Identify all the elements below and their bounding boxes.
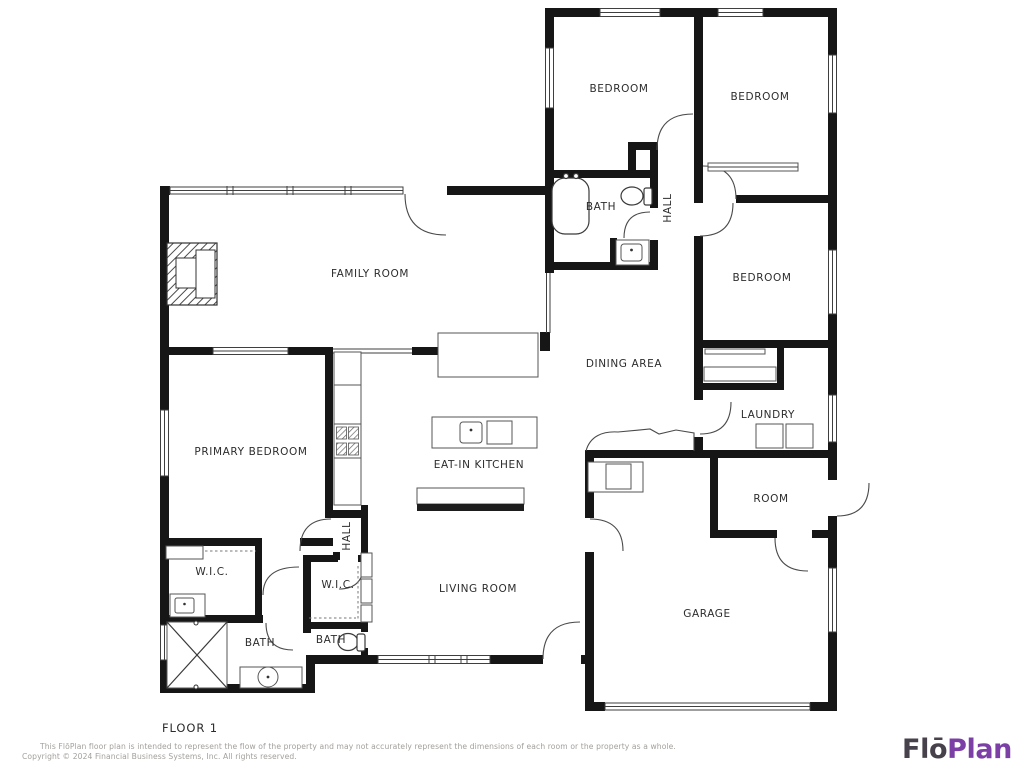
logo-flo: Flō	[902, 734, 947, 765]
bedroom-c-door	[700, 203, 733, 236]
fireplace	[167, 243, 217, 305]
room-label-bedroom-c: BEDROOM	[732, 272, 791, 284]
bath-left-vanity	[240, 667, 302, 688]
room-label-bedroom-a: BEDROOM	[589, 83, 648, 95]
dryer	[786, 424, 813, 448]
bedroom-a-door	[657, 114, 693, 150]
room-label-hall-lower: HALL	[341, 521, 353, 550]
room-label-family-room: FAMILY ROOM	[331, 268, 409, 280]
room-label-garage: GARAGE	[683, 608, 731, 620]
footer: FLOOR 1 This FlōPlan floor plan is inten…	[22, 721, 1012, 765]
wic-left-door	[263, 567, 299, 595]
room-exterior-door	[837, 483, 869, 516]
wic-left-shelf	[166, 546, 203, 559]
kitchen-counter-2	[334, 458, 361, 505]
room-label-hall-upper: HALL	[662, 193, 674, 222]
room-label-wic-right: W.I.C.	[321, 579, 354, 591]
garage-entry-door	[590, 519, 623, 551]
room-label-wic-left: W.I.C.	[195, 566, 228, 578]
stove	[334, 424, 361, 458]
kitchen-peninsula	[438, 333, 538, 377]
wic-left-sink	[170, 594, 205, 617]
room-label-bath-right: BATH	[316, 634, 346, 646]
floplan-logo: FlōPlan	[902, 734, 1012, 765]
floor-plan-svg: BEDROOM BEDROOM BATH HALL BEDROOM FAMILY…	[0, 0, 1024, 768]
kitchen-island	[432, 417, 537, 448]
room-label-primary-bedroom: PRIMARY BEDROOM	[194, 446, 307, 458]
front-door	[543, 622, 580, 659]
room-label-living-room: LIVING ROOM	[439, 583, 517, 595]
water-heater	[588, 462, 643, 492]
shower	[167, 621, 227, 689]
room-label-dining-area: DINING AREA	[586, 358, 663, 370]
room-label-eat-in-kitchen: EAT-IN KITCHEN	[434, 459, 524, 471]
disclaimer-line-2: Copyright © 2024 Financial Business Syst…	[22, 752, 297, 761]
room-label-laundry: LAUNDRY	[741, 409, 795, 421]
family-room-entry-door	[405, 194, 446, 235]
sofa	[417, 488, 524, 511]
closet-slider-dining	[705, 349, 765, 354]
washer	[756, 424, 783, 448]
refrigerator	[334, 352, 361, 385]
tub-faucet	[564, 174, 569, 179]
kitchen-counter-1	[334, 385, 361, 424]
laundry-door	[700, 402, 731, 434]
room-label-bedroom-b: BEDROOM	[730, 91, 789, 103]
floor-plan-canvas: BEDROOM BEDROOM BATH HALL BEDROOM FAMILY…	[0, 0, 1024, 768]
room-label-bath-left: BATH	[245, 637, 275, 649]
toilet-upper	[621, 187, 643, 205]
room-label-bath-upper: BATH	[586, 201, 616, 213]
closet-shelf-dining	[704, 367, 776, 381]
logo-plan: Plan	[947, 734, 1012, 765]
bathtub	[552, 178, 589, 234]
primary-hall-door	[300, 519, 331, 551]
entry-stoop	[586, 429, 694, 451]
disclaimer-line-1: This FlōPlan floor plan is intended to r…	[39, 742, 676, 751]
bath-upper-door	[624, 212, 650, 238]
room-label-room: ROOM	[753, 493, 788, 505]
linen-closet	[361, 553, 372, 577]
floor-label: FLOOR 1	[162, 721, 218, 735]
room-garage-door	[775, 538, 808, 571]
